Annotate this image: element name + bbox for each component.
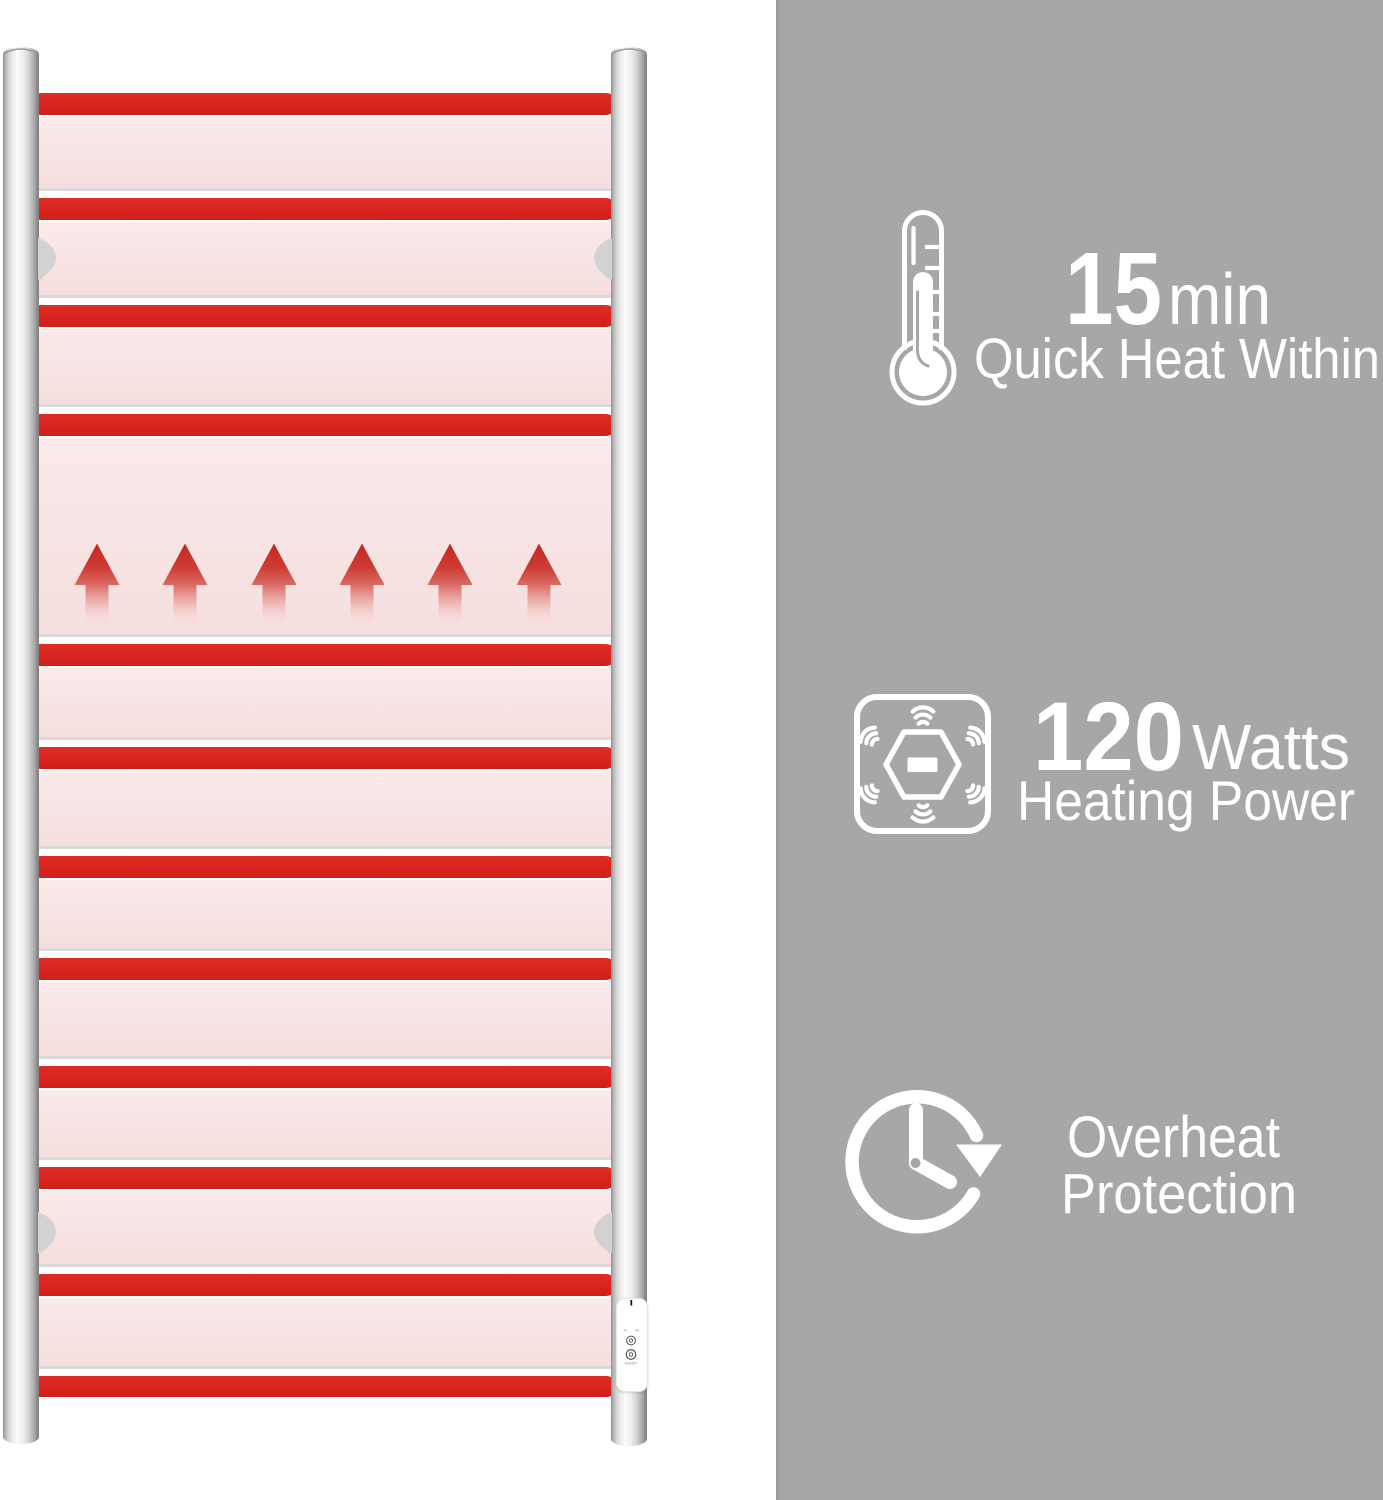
svg-text:2h: 2h — [624, 1329, 628, 1333]
svg-text:ON/OFF: ON/OFF — [625, 1362, 638, 1366]
svg-text:4h: 4h — [635, 1329, 639, 1333]
svg-text:Quick Heat Within: Quick Heat Within — [974, 327, 1380, 391]
svg-text:Protection: Protection — [1061, 1162, 1297, 1226]
svg-text:Overheat: Overheat — [1067, 1105, 1280, 1170]
svg-text:Heating Power: Heating Power — [1017, 769, 1355, 832]
